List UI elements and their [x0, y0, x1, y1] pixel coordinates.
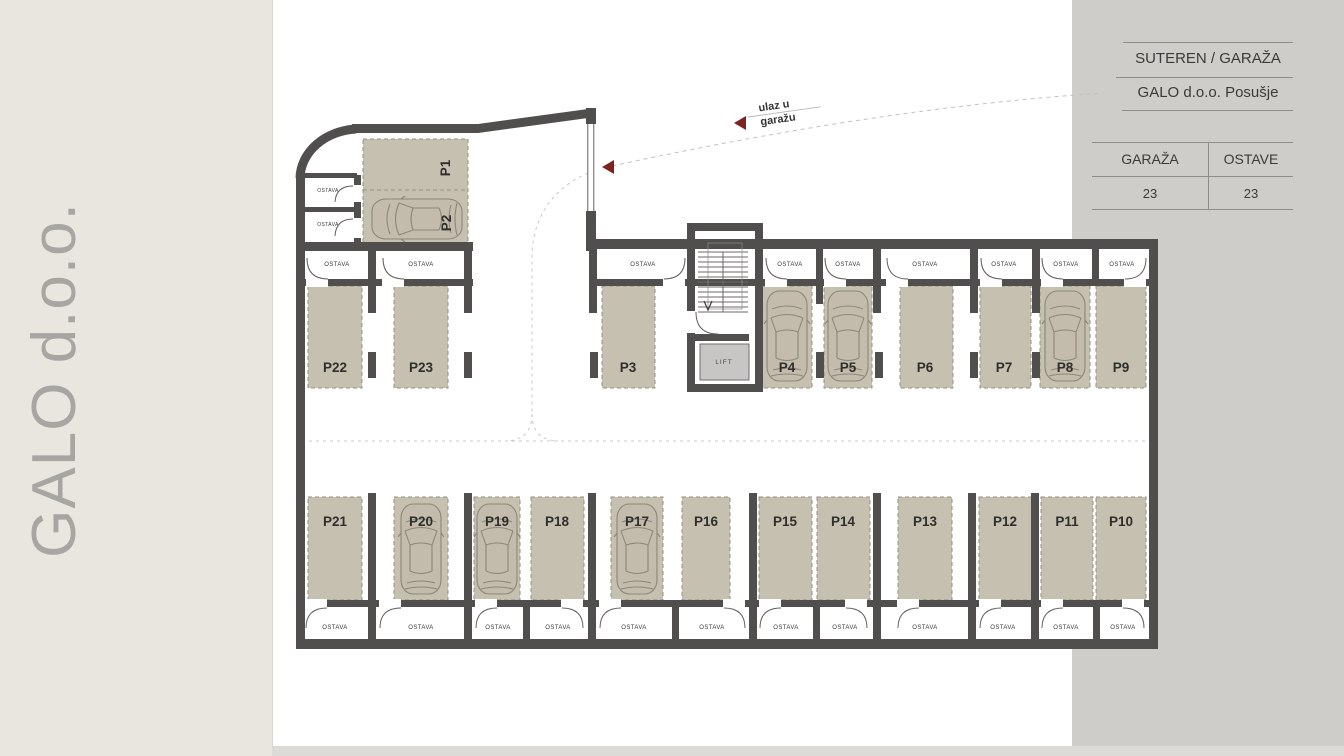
stall-label-p23: P23 [409, 360, 434, 375]
storage-label: OSTAVA [773, 625, 798, 631]
stall-label-p19: P19 [485, 514, 509, 529]
storage-label: OSTAVA [324, 262, 349, 268]
stall-label-p20: P20 [409, 514, 433, 529]
parking-stall [898, 497, 952, 600]
stall-label-p7: P7 [996, 360, 1013, 375]
legend-title: SUTEREN / GARAŽA [1108, 50, 1308, 67]
storage-label: OSTAVA [1109, 262, 1134, 268]
diagonal-wall [478, 109, 588, 133]
pillar [1032, 352, 1040, 378]
legend-col2-header: OSTAVE [1209, 151, 1293, 167]
storage-label: OSTAVA [912, 262, 937, 268]
legend-table-rule [1092, 142, 1293, 143]
entrance-arrow-icon [602, 160, 614, 174]
entrance-arrow-icon [734, 116, 746, 130]
legend-col2-value: 23 [1209, 186, 1293, 201]
storage-label: OSTAVA [317, 222, 339, 228]
legend-subtitle: GALO d.o.o. Posušje [1108, 84, 1308, 101]
stall-label-p14: P14 [831, 514, 856, 529]
storage-label: OSTAVA [1053, 625, 1078, 631]
legend-rule [1123, 42, 1293, 43]
storage-label: OSTAVA [317, 188, 339, 194]
garage-gate [587, 124, 594, 211]
stall-label-p2: P2 [439, 215, 454, 232]
pillar [590, 352, 598, 378]
storage-label: OSTAVA [832, 625, 857, 631]
stall-label-p21: P21 [323, 514, 348, 529]
lift: LIFT [700, 344, 749, 380]
storage-label: OSTAVA [1053, 262, 1078, 268]
storage-label: OSTAVA [990, 625, 1015, 631]
parking-stall [979, 497, 1032, 600]
legend-table-divider [1208, 142, 1209, 209]
entrance-label-line2: garažu [760, 111, 797, 128]
parking-stall [531, 497, 584, 600]
parking-stall [1041, 497, 1093, 600]
floor-plan: LIFT ulaz u garažu P1 P2 P3 P4 P5 P6 P7 … [0, 0, 1344, 756]
storage-label: OSTAVA [912, 625, 937, 631]
legend-leader-line [612, 93, 1103, 166]
storage-label: OSTAVA [630, 262, 655, 268]
storage-label: OSTAVA [408, 262, 433, 268]
pillar [816, 352, 824, 378]
stall-label-p9: P9 [1113, 360, 1130, 375]
stall-label-p4: P4 [779, 360, 796, 375]
legend-table-rule [1092, 176, 1293, 177]
storage-label: OSTAVA [991, 262, 1016, 268]
parking-stall [682, 497, 730, 600]
stall-label-p15: P15 [773, 514, 798, 529]
parking-stall [759, 497, 812, 600]
parking-stall [817, 497, 870, 600]
storage-label: OSTAVA [835, 262, 860, 268]
stall-label-p1: P1 [438, 159, 453, 176]
stall-label-p17: P17 [625, 514, 649, 529]
storage-label: OSTAVA [1110, 625, 1135, 631]
lift-label: LIFT [715, 359, 732, 366]
storage-label: OSTAVA [545, 625, 570, 631]
entrance-annotation: ulaz u garažu [602, 94, 823, 174]
curved-wall [300, 129, 356, 178]
stall-label-p11: P11 [1055, 514, 1079, 529]
stall-label-p8: P8 [1057, 360, 1074, 375]
stall-label-p3: P3 [620, 360, 637, 375]
legend-col1-value: 23 [1092, 186, 1208, 201]
stall-label-p13: P13 [913, 514, 938, 529]
stall-label-p5: P5 [840, 360, 857, 375]
stall-label-p12: P12 [993, 514, 1017, 529]
storage-label: OSTAVA [408, 625, 433, 631]
legend-col1-header: GARAŽA [1092, 151, 1208, 167]
storage-label: OSTAVA [699, 625, 724, 631]
storage-label: OSTAVA [322, 625, 347, 631]
staircase [698, 243, 748, 312]
drawing-sheet: GALO d.o.o. [0, 0, 1344, 756]
pillar [464, 352, 472, 378]
storage-label: OSTAVA [621, 625, 646, 631]
storage-label: OSTAVA [777, 262, 802, 268]
pillar [970, 352, 978, 378]
pillar [875, 352, 883, 378]
legend-rule [1122, 110, 1293, 111]
stall-label-p18: P18 [545, 514, 570, 529]
legend-rule [1116, 77, 1293, 78]
stall-label-p10: P10 [1109, 514, 1133, 529]
legend-table-rule [1092, 209, 1293, 210]
storage-label: OSTAVA [485, 625, 510, 631]
stall-label-p22: P22 [323, 360, 347, 375]
pillar [368, 352, 376, 378]
stall-label-p16: P16 [694, 514, 719, 529]
stall-label-p6: P6 [917, 360, 934, 375]
parking-stall [1096, 497, 1146, 600]
parking-stall [308, 497, 362, 600]
